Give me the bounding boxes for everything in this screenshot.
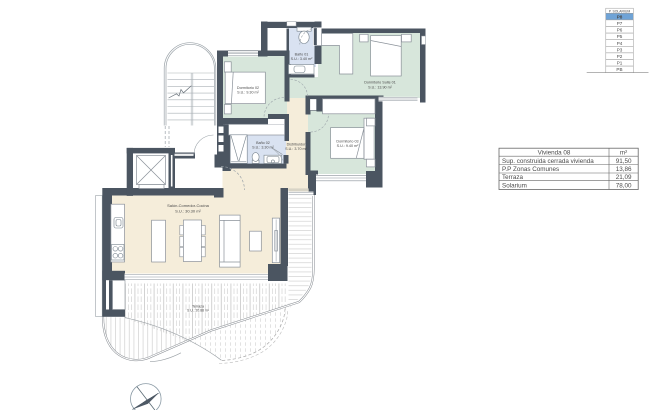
svg-text:S.U.: 20.88 m²: S.U.: 20.88 m² — [187, 309, 210, 313]
svg-text:S.U.: 3.30 m²: S.U.: 3.30 m² — [252, 146, 274, 150]
svg-text:S.U.: 9.30 m²: S.U.: 9.30 m² — [237, 91, 259, 95]
svg-text:78,00: 78,00 — [616, 183, 632, 190]
svg-text:P. SOLARIUM: P. SOLARIUM — [609, 9, 631, 13]
svg-text:Baño 02: Baño 02 — [256, 141, 270, 145]
svg-text:S.U.: 9.40 m²: S.U.: 9.40 m² — [337, 144, 359, 148]
svg-text:Salón-Comedor-Cocina: Salón-Comedor-Cocina — [167, 203, 210, 208]
svg-text:S.U.: 3.70 m²: S.U.: 3.70 m² — [285, 147, 307, 151]
svg-text:Dormitorio 03: Dormitorio 03 — [336, 139, 358, 143]
svg-text:Vivienda 08: Vivienda 08 — [538, 150, 571, 157]
svg-text:S.U.: 3.40 m²: S.U.: 3.40 m² — [291, 57, 313, 61]
svg-text:Baño 01: Baño 01 — [295, 53, 309, 57]
svg-text:P3: P3 — [617, 47, 623, 52]
svg-text:S.U.: 30.30 m²: S.U.: 30.30 m² — [175, 209, 201, 214]
svg-text:Solarium: Solarium — [502, 183, 527, 190]
svg-text:13,86: 13,86 — [616, 166, 632, 173]
svg-text:Distribuidor: Distribuidor — [287, 143, 306, 147]
svg-text:P7: P7 — [617, 21, 623, 26]
svg-text:91,50: 91,50 — [616, 158, 632, 165]
svg-text:P5: P5 — [617, 34, 623, 39]
svg-text:Dormitorio Suite 01: Dormitorio Suite 01 — [364, 81, 396, 85]
svg-text:Terraza: Terraza — [502, 174, 523, 181]
svg-text:21,09: 21,09 — [616, 174, 632, 181]
svg-text:P2: P2 — [617, 54, 623, 59]
svg-text:Dormitorio 02: Dormitorio 02 — [237, 86, 259, 90]
svg-text:P6: P6 — [617, 28, 623, 33]
svg-text:m²: m² — [620, 150, 627, 157]
svg-text:P.P Zonas Comunes: P.P Zonas Comunes — [502, 166, 559, 173]
svg-text:P8: P8 — [617, 14, 623, 19]
svg-text:P4: P4 — [617, 41, 623, 46]
svg-text:S.U.: 13.90 m²: S.U.: 13.90 m² — [368, 86, 393, 90]
svg-text:Sup. construida cerrada vivien: Sup. construida cerrada vivienda — [502, 158, 594, 165]
svg-text:PB: PB — [616, 67, 622, 72]
svg-text:P1: P1 — [617, 61, 623, 66]
